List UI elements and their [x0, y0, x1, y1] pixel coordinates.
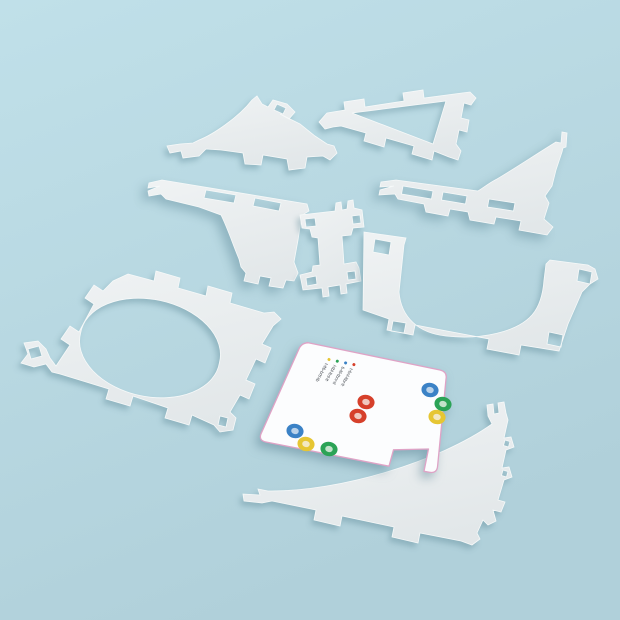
scene-svg: t-ltb-brtl-tbl-tbl-ltnl-ltb-ltl-tbnr-tlt…: [0, 0, 620, 620]
screenshot-root: t-ltb-brtl-tbl-tbl-ltnl-ltb-ltl-tbnr-tlt…: [0, 0, 620, 620]
